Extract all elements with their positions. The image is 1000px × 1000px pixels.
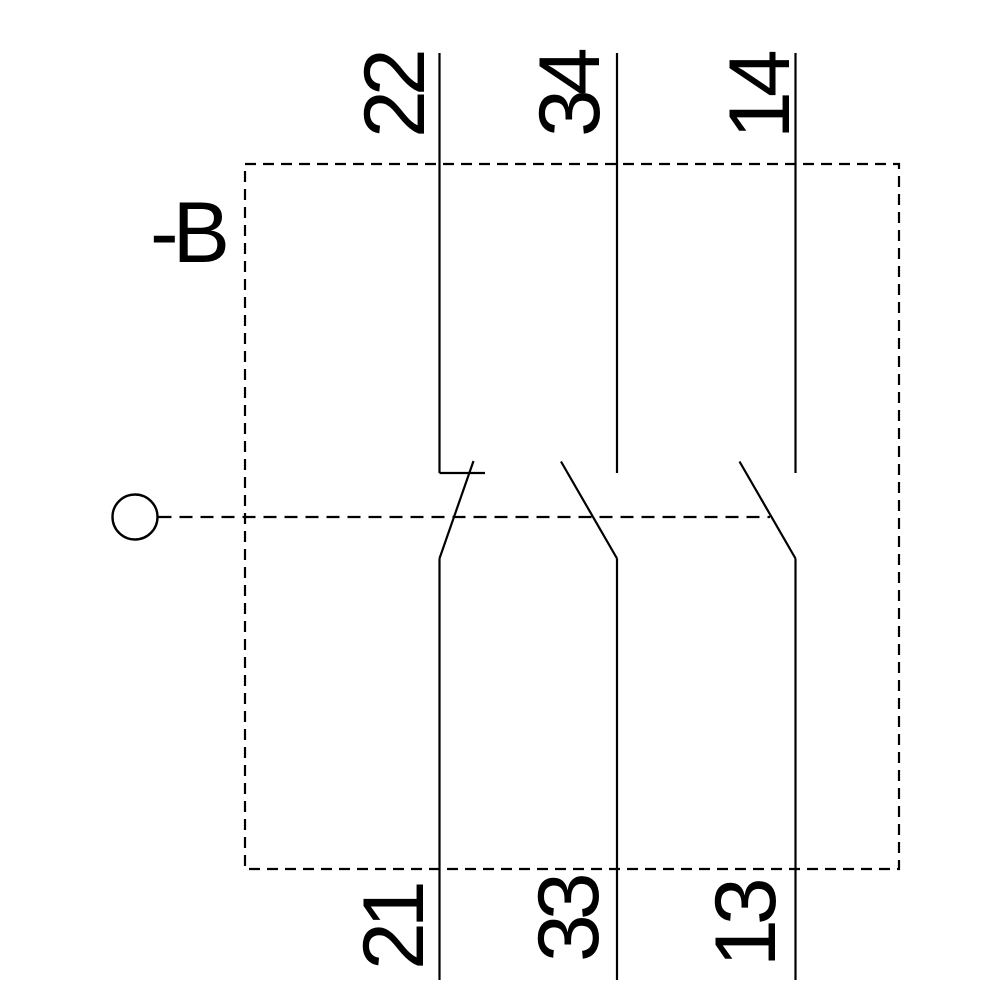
- actuator-circle-icon: [113, 495, 158, 540]
- terminal-label-21: 21: [346, 884, 442, 970]
- contact-arm-2: [561, 462, 617, 559]
- device-label: -B: [150, 185, 226, 281]
- terminal-label-13: 13: [698, 880, 794, 967]
- device-boundary-box: [245, 164, 899, 869]
- contact-arm-3: [740, 462, 796, 559]
- terminal-label-34: 34: [522, 49, 618, 137]
- terminal-label-22: 22: [347, 52, 443, 138]
- circuit-diagram: -B 22 34 14 21 33 13: [0, 0, 1000, 1000]
- schematic-canvas: -B 22 34 14 21 33 13: [0, 0, 1000, 1000]
- terminal-label-14: 14: [712, 51, 808, 139]
- contact-arm-1: [440, 461, 474, 559]
- terminal-label-33: 33: [521, 875, 617, 962]
